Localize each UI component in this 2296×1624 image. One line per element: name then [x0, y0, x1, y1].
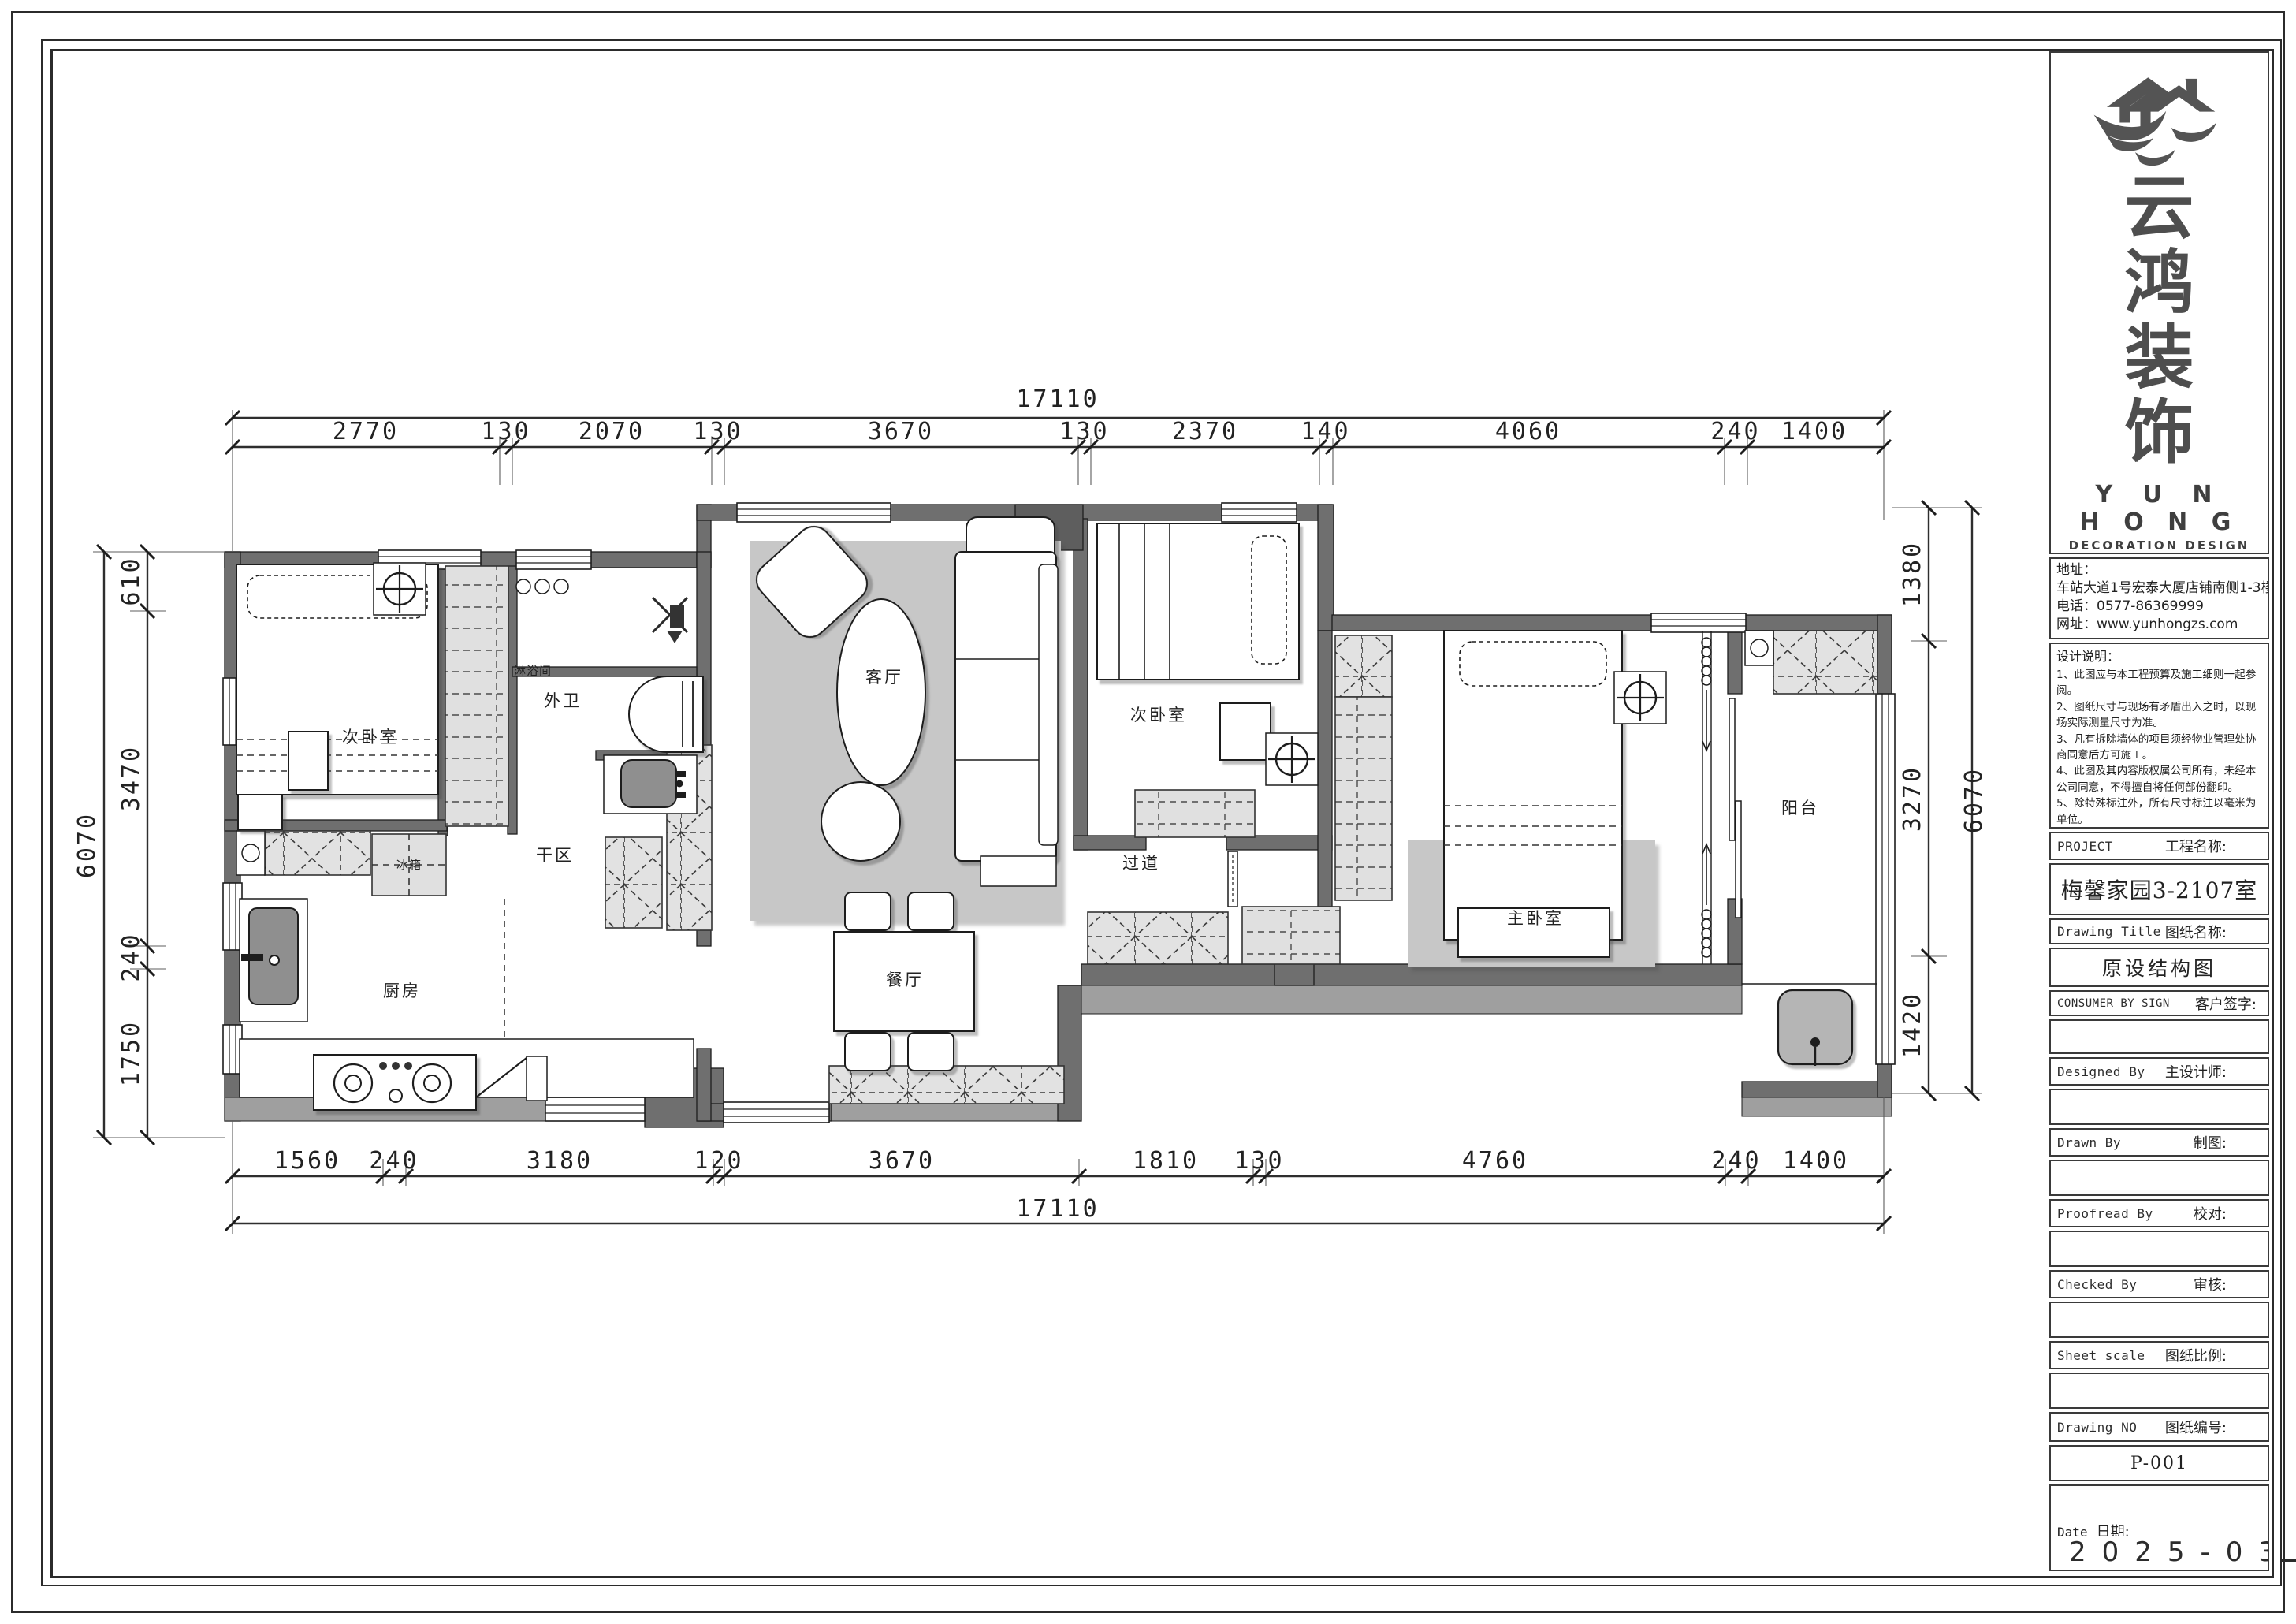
- room-label-bath: 外卫: [544, 691, 582, 710]
- dim-right-segments: 1380 3270 1420: [1899, 501, 1936, 1101]
- note-item: 4、此图及其内容版权属公司所有，未经本公司同意，不得擅自将任何部份翻印。: [2056, 763, 2262, 795]
- room-label-fridge: 冰箱: [396, 858, 422, 872]
- note-item: 5、除特殊标注外，所有尺寸标注以毫米为单位。: [2056, 795, 2262, 828]
- consumer-label-cn: 客户签字:: [2195, 993, 2257, 1014]
- proofread-by-empty: [2049, 1231, 2269, 1267]
- window: [516, 550, 591, 569]
- project-name-value: 梅馨家园3-2107室: [2049, 863, 2269, 915]
- proofread-by-label-row: Proofread By 校对:: [2049, 1199, 2269, 1227]
- svg-text:130: 130: [1059, 418, 1109, 445]
- roof-and-birds-icon: [2081, 61, 2238, 167]
- cabinet-end: [236, 831, 265, 875]
- svg-text:2770: 2770: [333, 418, 399, 445]
- logo-char: 鸿: [2124, 245, 2194, 320]
- svg-text:4060: 4060: [1495, 418, 1561, 445]
- svg-text:1420: 1420: [1899, 992, 1926, 1058]
- dining-chair: [845, 1033, 891, 1071]
- coffee-table: [837, 599, 925, 785]
- proofread-label-cn: 校对:: [2194, 1203, 2227, 1224]
- drawing-title-label-row: Drawing Title 图纸名称:: [2049, 918, 2269, 944]
- company-name-vertical: 云 鸿 装 饰: [2124, 170, 2194, 470]
- address-value: 车站大道1号宏泰大厦店铺南侧1-3楼: [2056, 579, 2262, 598]
- svg-text:1400: 1400: [1781, 418, 1848, 445]
- sofa: [955, 517, 1058, 886]
- room-label-balcony: 阳台: [1781, 799, 1819, 818]
- drawing-title-value: 原设结构图: [2049, 948, 2269, 987]
- date-cell: Date 日期: 2025-03: [2049, 1484, 2269, 1571]
- balcony-cabinet-hatch: [1773, 631, 1877, 694]
- svg-text:3670: 3670: [869, 1147, 935, 1175]
- svg-text:240: 240: [1711, 1147, 1761, 1175]
- window: [724, 1102, 829, 1123]
- room-label-living: 客厅: [865, 668, 903, 687]
- logo-char: 云: [2124, 170, 2194, 245]
- window: [545, 1097, 645, 1121]
- side-table: [821, 782, 900, 861]
- ceiling-lights-icon: [516, 579, 568, 594]
- low-cabinet-hatch: [605, 837, 662, 928]
- scale-label-en: Sheet scale: [2057, 1348, 2145, 1363]
- svg-text:4760: 4760: [1462, 1147, 1528, 1175]
- sheet-scale-label-row: Sheet scale 图纸比例:: [2049, 1341, 2269, 1369]
- door-leaf: [1228, 851, 1237, 907]
- address-label: 地址：: [2056, 561, 2262, 579]
- drawing-no-value: P-001: [2049, 1445, 2269, 1481]
- sheet-scale-empty: [2049, 1373, 2269, 1409]
- sliding-panel: [1736, 801, 1741, 918]
- dining-chair: [908, 1033, 954, 1071]
- website-value: 网址：www.yunhongzs.com: [2056, 616, 2262, 634]
- svg-text:2070: 2070: [579, 418, 645, 445]
- svg-text:130: 130: [1234, 1147, 1284, 1175]
- window: [1651, 613, 1746, 632]
- phone-value: 电话：0577-86369999: [2056, 598, 2262, 616]
- company-tagline: DECORATION DESIGN: [2069, 538, 2250, 553]
- consumer-sign-empty: [2049, 1019, 2269, 1054]
- contact-cell: 地址： 车站大道1号宏泰大厦店铺南侧1-3楼 电话：0577-86369999 …: [2049, 557, 2269, 639]
- room-label-dry-area: 干区: [536, 846, 574, 865]
- window: [1876, 694, 1895, 1064]
- date-value: 2025-03: [2066, 1536, 2269, 1568]
- svg-text:3180: 3180: [527, 1147, 593, 1175]
- logo-char: 装: [2124, 320, 2194, 395]
- number-label-en: Drawing NO: [2057, 1420, 2137, 1435]
- master-corner-hatch: [1335, 635, 1392, 697]
- dim-right-total: 6070: [1960, 501, 1988, 1101]
- consumer-label-en: CONSUMER BY SIGN: [2057, 997, 2170, 1010]
- note-item: 3、凡有拆除墙体的项目须经物业管理处协商同意后方可施工。: [2056, 732, 2262, 764]
- floor-plan-canvas: 次卧室 淋浴间 外卫 干区 冰箱 厨房 客厅 餐厅 次卧室 过道 主卧室 阳台 …: [0, 0, 2296, 1624]
- svg-text:130: 130: [693, 418, 742, 445]
- drawing-title-label-en: Drawing Title: [2057, 924, 2161, 939]
- note-item: 2、图纸尺寸与现场有矛盾出入之时，以现场实际测量尺寸为准。: [2056, 699, 2262, 732]
- dim-left-segments: 610 3470 240 1750: [117, 545, 154, 1145]
- room-label-shower: 淋浴间: [514, 664, 552, 678]
- designed-by-empty: [2049, 1089, 2269, 1125]
- room-label-dining: 餐厅: [886, 970, 924, 989]
- shower-head-icon: [653, 598, 687, 643]
- dim-left-total: 6070: [73, 545, 111, 1145]
- number-label-cn: 图纸编号:: [2165, 1417, 2227, 1437]
- project-label-row: PROJECT 工程名称:: [2049, 832, 2269, 860]
- room-label-kitchen: 厨房: [383, 981, 421, 1000]
- designed-label-en: Designed By: [2057, 1064, 2145, 1079]
- stove-icon: [314, 1055, 476, 1110]
- svg-text:17110: 17110: [1016, 386, 1099, 413]
- corridor-closet-grid: [1242, 907, 1340, 964]
- svg-text:140: 140: [1301, 418, 1350, 445]
- svg-text:3270: 3270: [1899, 765, 1926, 832]
- logo-char: 饰: [2124, 395, 2194, 470]
- dining-chair: [845, 892, 891, 930]
- room-label-master: 主卧室: [1507, 909, 1564, 928]
- title-block: 云 鸿 装 饰 Y U N H O N G DECORATION DESIGN …: [2049, 51, 2269, 1571]
- dining-bench-hatch: [829, 1066, 1064, 1104]
- north-symbol-icon: [374, 563, 426, 615]
- hall-closet-grid: [445, 566, 508, 826]
- north-symbol-icon: [1266, 733, 1318, 785]
- svg-text:1380: 1380: [1899, 541, 1926, 607]
- dim-top-segments: 2770 130 2070 130 3670 130 2370 140 4060…: [225, 418, 1891, 454]
- bathtub-icon: [629, 676, 703, 752]
- svg-text:17110: 17110: [1016, 1195, 1099, 1223]
- vanity-sink: [604, 755, 697, 814]
- company-name-en: H O N G: [2080, 508, 2239, 536]
- note-item: 6、该图纸为施工图纸，双方（客户和设计师）签字认可后，方可指导施工。: [2056, 828, 2262, 829]
- checked-by-empty: [2049, 1302, 2269, 1338]
- proofread-label-en: Proofread By: [2057, 1206, 2153, 1221]
- drawn-label-en: Drawn By: [2057, 1135, 2121, 1150]
- svg-text:120: 120: [694, 1147, 743, 1175]
- svg-text:1400: 1400: [1783, 1147, 1849, 1175]
- svg-text:1810: 1810: [1133, 1147, 1199, 1175]
- north-symbol-icon: [1614, 672, 1666, 724]
- drawn-by-label-row: Drawn By 制图:: [2049, 1128, 2269, 1157]
- svg-text:1750: 1750: [117, 1020, 145, 1086]
- svg-text:610: 610: [117, 556, 145, 605]
- corridor-cabinet-hatch: [1088, 912, 1228, 964]
- svg-text:3470: 3470: [117, 745, 145, 811]
- designed-by-label-row: Designed By 主设计师:: [2049, 1057, 2269, 1086]
- room-label-bedroom-mid: 次卧室: [1130, 706, 1187, 724]
- dining-chair: [908, 892, 954, 930]
- sliding-panel: [1729, 698, 1735, 840]
- washing-machine-icon: [1778, 990, 1852, 1066]
- room-label-bedroom-left: 次卧室: [342, 728, 399, 747]
- svg-text:240: 240: [369, 1147, 419, 1175]
- checked-label-cn: 审核:: [2194, 1274, 2227, 1294]
- svg-text:1560: 1560: [274, 1147, 340, 1175]
- window: [737, 503, 891, 522]
- drawing-title-label-cn: 图纸名称:: [2165, 922, 2227, 942]
- project-label-en: PROJECT: [2057, 839, 2113, 854]
- desk: [1220, 703, 1271, 760]
- scale-label-cn: 图纸比例:: [2165, 1345, 2227, 1365]
- svg-text:240: 240: [117, 932, 145, 981]
- window: [1222, 503, 1297, 522]
- bed-middle: [1097, 523, 1299, 680]
- company-logo-cell: 云 鸿 装 饰 Y U N H O N G DECORATION DESIGN: [2049, 51, 2269, 554]
- kitchen-sink: [240, 899, 307, 1022]
- nightstand: [238, 795, 282, 829]
- drawn-label-cn: 制图:: [2194, 1132, 2227, 1153]
- checked-label-en: Checked By: [2057, 1277, 2137, 1292]
- svg-text:240: 240: [1710, 418, 1760, 445]
- dim-bottom-total: 17110: [225, 1195, 1891, 1231]
- drawing-no-label-row: Drawing NO 图纸编号:: [2049, 1412, 2269, 1442]
- company-name-en: Y U N: [2095, 481, 2223, 508]
- bed-master: [1444, 631, 1622, 940]
- project-label-cn: 工程名称:: [2165, 836, 2227, 856]
- notes-heading: 设计说明：: [2056, 647, 2262, 666]
- consumer-sign-label-row: CONSUMER BY SIGN 客户签字:: [2049, 990, 2269, 1016]
- nightstand: [288, 732, 328, 790]
- design-notes-cell: 设计说明： 1、此图应与本工程预算及施工细则一起参阅。 2、图纸尺寸与现场有矛盾…: [2049, 643, 2269, 829]
- drawn-by-empty: [2049, 1160, 2269, 1196]
- svg-text:130: 130: [481, 418, 530, 445]
- svg-text:6070: 6070: [73, 812, 101, 878]
- room-label-corridor: 过道: [1122, 854, 1160, 873]
- master-wardrobe-grid: [1335, 697, 1392, 900]
- svg-text:3670: 3670: [868, 418, 934, 445]
- svg-text:6070: 6070: [1960, 767, 1988, 833]
- svg-text:2370: 2370: [1172, 418, 1238, 445]
- bedroom2-wardrobe-grid: [1135, 790, 1255, 837]
- dim-top-total: 17110: [225, 386, 1891, 425]
- designed-label-cn: 主设计师:: [2165, 1061, 2227, 1082]
- dim-bottom-segments: 1560 240 3180 120 3670 1810 130 4760 240…: [225, 1147, 1891, 1183]
- checked-by-label-row: Checked By 审核:: [2049, 1270, 2269, 1298]
- balcony-cabinet-end: [1745, 631, 1773, 665]
- note-item: 1、此图应与本工程预算及施工细则一起参阅。: [2056, 667, 2262, 699]
- wardrobe-hatch: [265, 831, 370, 875]
